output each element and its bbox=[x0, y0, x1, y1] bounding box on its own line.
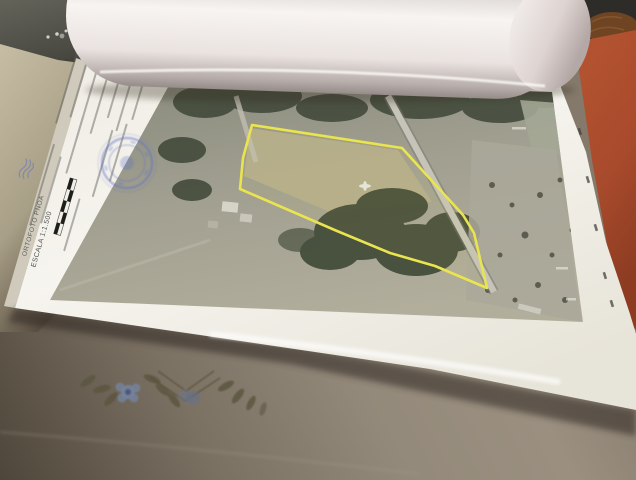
rolled-page bbox=[64, 0, 601, 101]
embroidered-flower-faint bbox=[186, 391, 200, 405]
photograph-of-map-document: ORTOFOTO PNOA ESCALA 1:1.500 bbox=[0, 0, 636, 480]
flower-center bbox=[125, 389, 131, 395]
